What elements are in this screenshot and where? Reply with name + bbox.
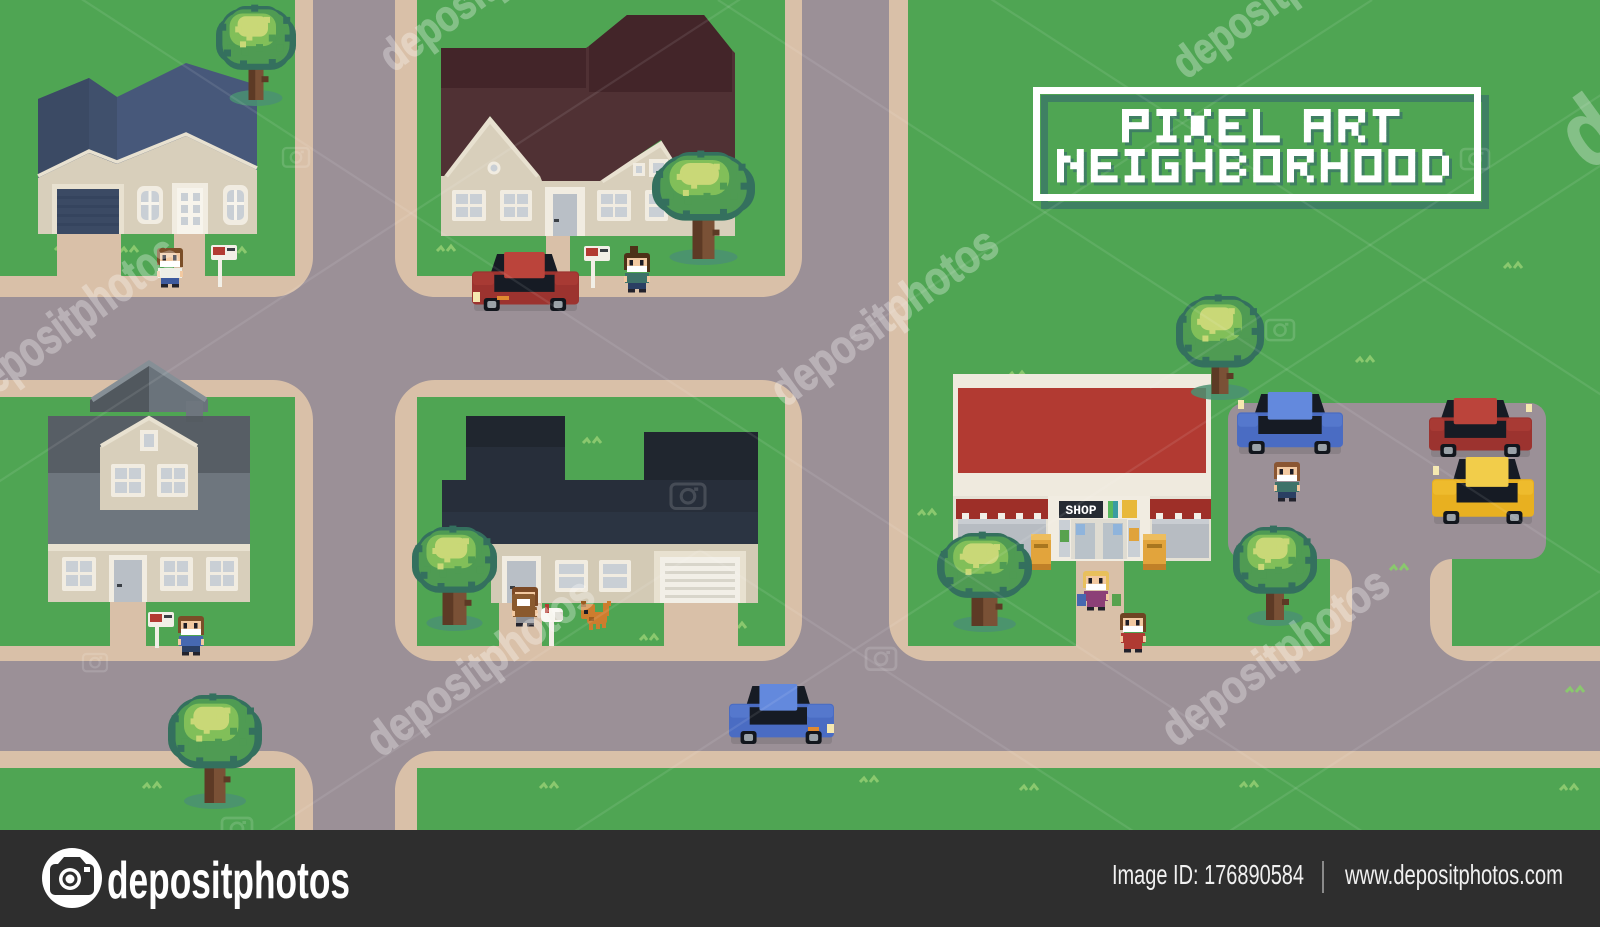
- svg-text:www.depositphotos.com: www.depositphotos.com: [1344, 859, 1563, 890]
- svg-text:depositphotos: depositphotos: [107, 852, 350, 910]
- svg-text:Image ID: 176890584: Image ID: 176890584: [1112, 859, 1304, 890]
